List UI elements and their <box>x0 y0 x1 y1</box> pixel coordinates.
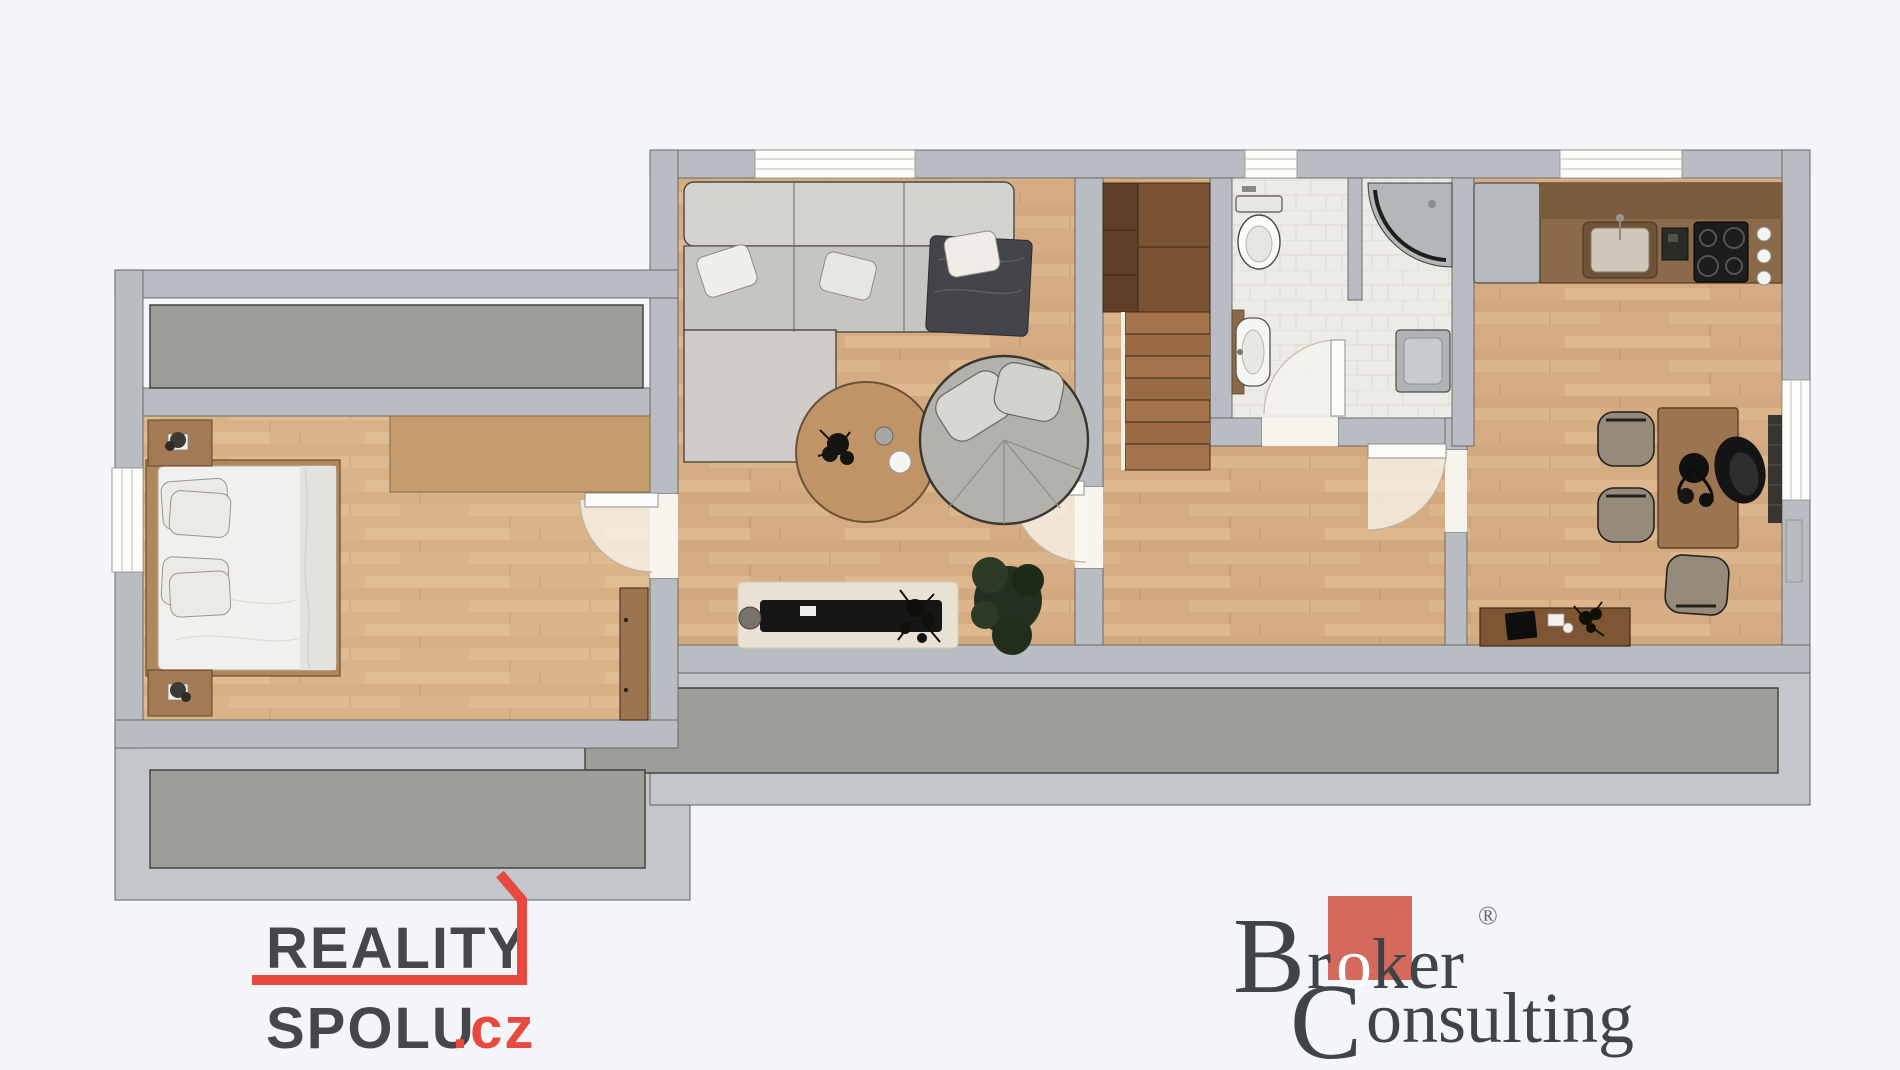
cz-suffix: .cz <box>452 996 535 1061</box>
wall-wing-top <box>115 270 678 298</box>
nightstand-top <box>148 420 212 466</box>
wall-bath-right <box>1452 178 1474 446</box>
consulting-c: C <box>1290 963 1362 1070</box>
bedroom-window <box>112 468 143 572</box>
wall-bottom-main <box>650 645 1810 673</box>
nightstand-bottom <box>148 670 212 716</box>
wall-bath-left <box>1210 178 1232 446</box>
floor-plan-canvas: REALITY SPOLU .cz B r o k er ® C onsulti… <box>0 0 1900 1070</box>
loggia-storage <box>150 305 643 388</box>
cooktop <box>1694 222 1748 282</box>
radiator <box>1786 520 1802 582</box>
wall-bath-partition <box>1348 178 1362 300</box>
consulting-rest: onsulting <box>1366 978 1634 1058</box>
living-room <box>684 182 1088 655</box>
stair-cabinet <box>1103 183 1138 312</box>
wall-bath-bottom-left <box>1210 418 1262 446</box>
stair-steps <box>1121 312 1210 470</box>
spolu-text: SPOLU <box>266 996 476 1061</box>
reality-text: REALITY <box>266 916 528 981</box>
kitchen-window <box>1560 150 1682 178</box>
kitchen-side-window <box>1782 380 1810 500</box>
reality-spolu-logo: REALITY SPOLU .cz <box>252 874 535 1061</box>
coffee-machine <box>1662 228 1688 260</box>
bedroom-sideboard <box>620 588 648 720</box>
registered-mark-icon: ® <box>1478 901 1498 930</box>
side-stool <box>739 607 761 629</box>
washbasin <box>1232 310 1270 394</box>
terrace-deck-lower <box>150 770 645 868</box>
wall-desk <box>1768 415 1782 523</box>
laptop <box>1505 611 1538 641</box>
wall-wing-bottom <box>115 720 678 748</box>
bedroom-rug <box>390 416 650 492</box>
wall-living-hall-lower <box>1075 568 1103 645</box>
kitchen-sink <box>1583 214 1657 278</box>
coffee-table <box>796 382 936 522</box>
fridge <box>1474 183 1540 283</box>
sofa-pillow <box>943 230 1001 278</box>
floor-plan-image: REALITY SPOLU .cz B r o k er ® C onsulti… <box>0 0 1900 1070</box>
kitchen-upper-cabinets <box>1540 183 1782 219</box>
control-knobs <box>1757 227 1771 285</box>
bathroom-window <box>1245 150 1297 178</box>
living-room-window <box>755 150 915 178</box>
washing-machine <box>1396 330 1450 392</box>
wall-bedroom-top <box>143 388 650 416</box>
bed <box>146 460 340 676</box>
sideboard <box>1480 602 1630 646</box>
toilet <box>1236 186 1282 269</box>
broker-consulting-logo: B r o k er ® C onsulting <box>1233 896 1634 1070</box>
terrace-deck-upper <box>585 688 1778 773</box>
wall-kitchen-left-lower <box>1445 532 1467 645</box>
swivel-lounge-chair <box>920 356 1088 524</box>
wall-bedroom-living-upper <box>650 150 678 494</box>
